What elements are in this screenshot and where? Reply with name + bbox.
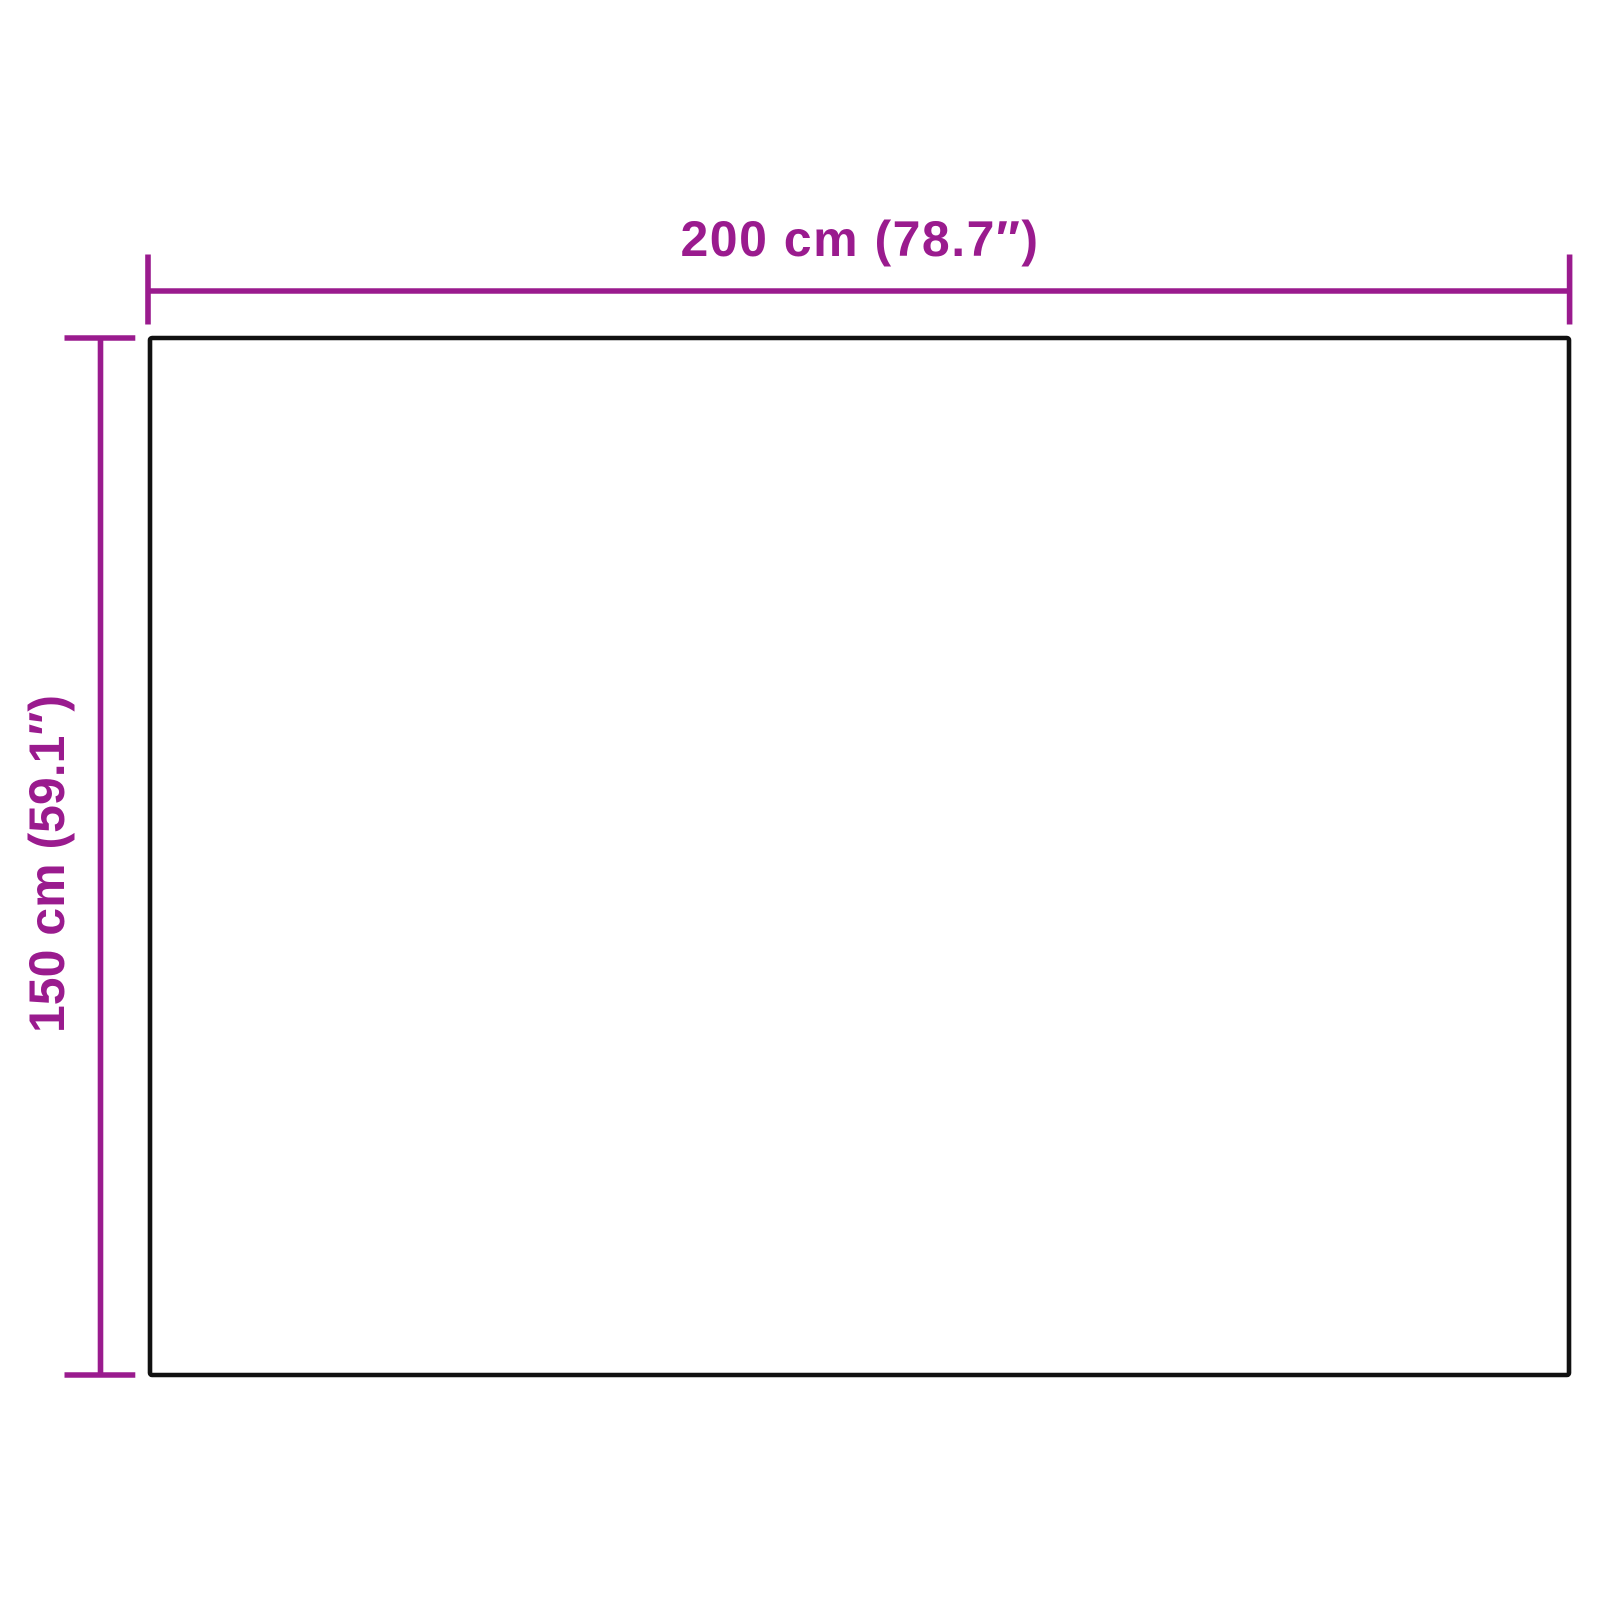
svg-text:150 cm (59.1″): 150 cm (59.1″) bbox=[19, 695, 75, 1033]
svg-text:200 cm (78.7″): 200 cm (78.7″) bbox=[680, 211, 1039, 267]
